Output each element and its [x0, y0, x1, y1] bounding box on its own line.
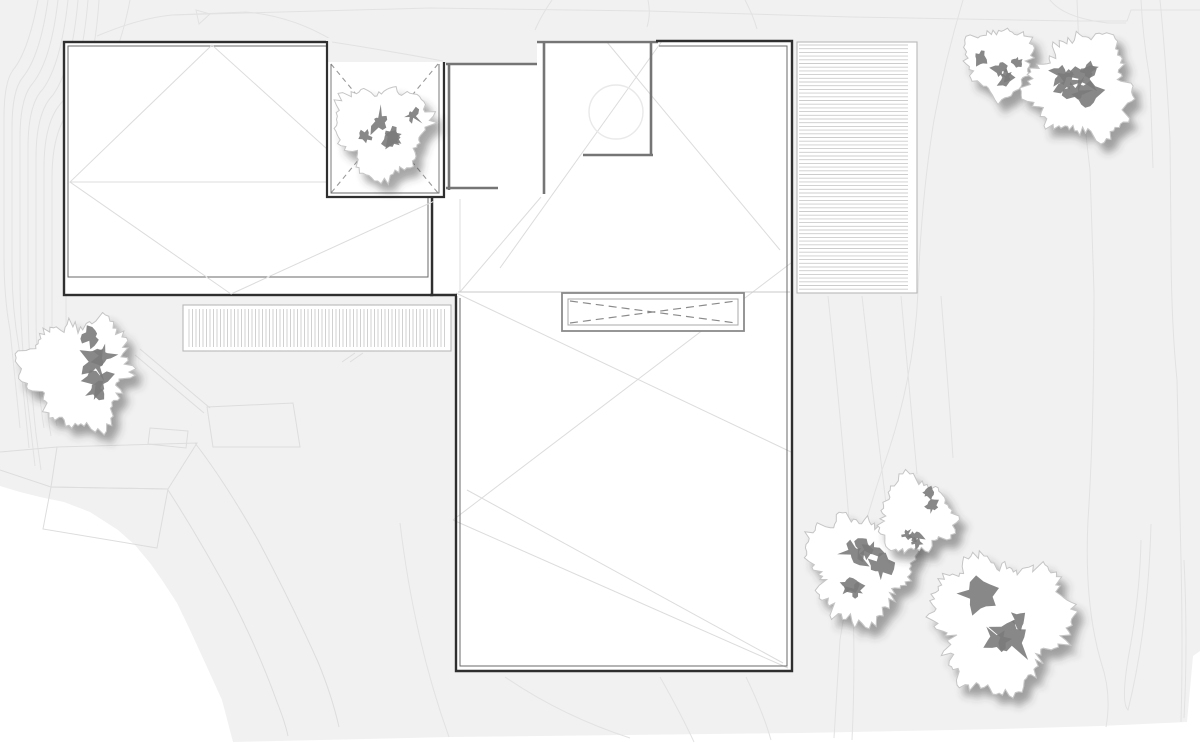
slatted-deck-west — [183, 305, 451, 351]
main-wing-roof-upper — [656, 42, 792, 292]
roof-skylight — [562, 293, 744, 331]
slatted-deck-west-frame — [183, 305, 451, 351]
plan-drawing — [0, 0, 1200, 743]
main-wing-roof-lower — [456, 291, 792, 671]
slatted-deck-east — [797, 42, 917, 293]
site-plan — [0, 0, 1200, 743]
